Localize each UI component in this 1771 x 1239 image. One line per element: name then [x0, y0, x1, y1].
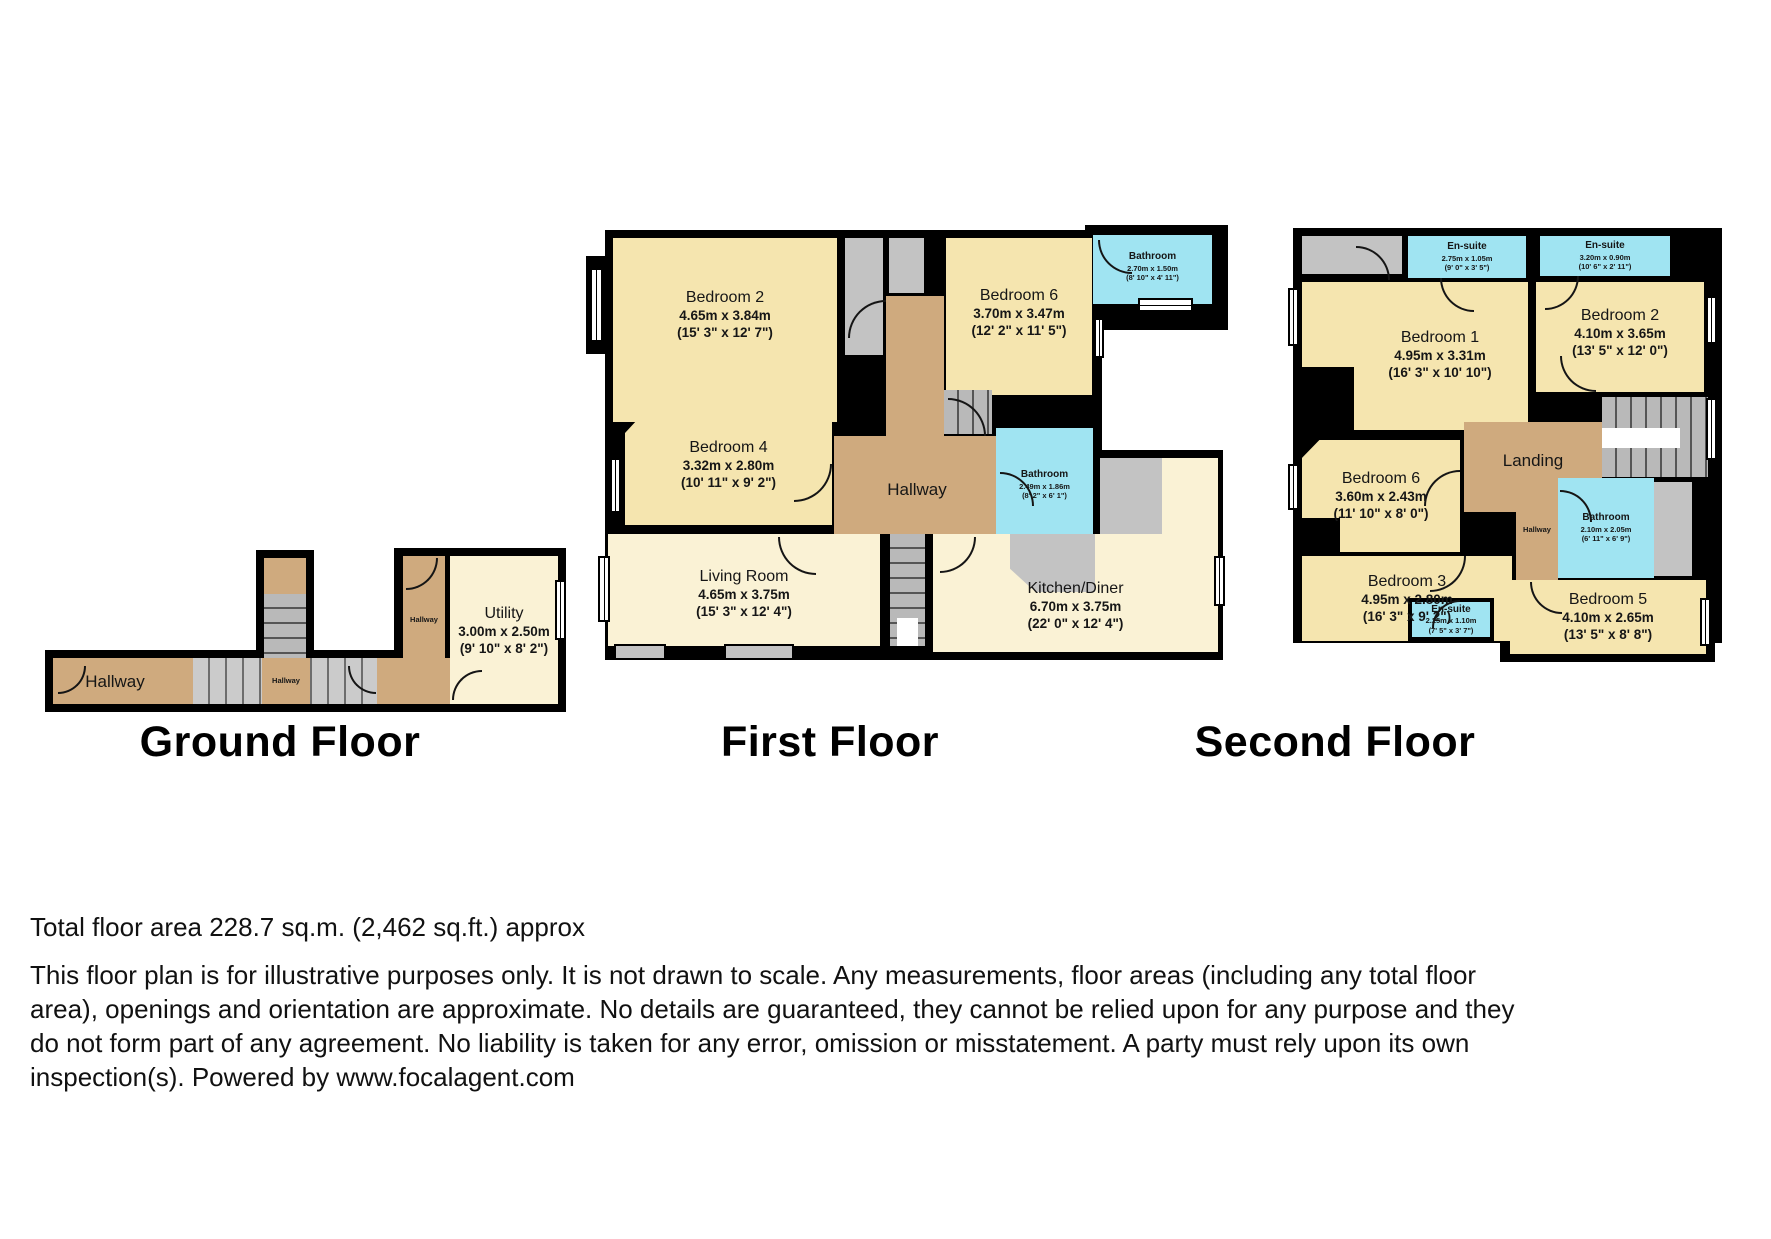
- stair-shaft-top: [264, 558, 306, 594]
- room-label-ensuite-2: En-suite 3.20m x 0.90m (10' 6" x 2' 11"): [1540, 236, 1670, 276]
- room-label-hallway-side: Hallway: [403, 610, 445, 630]
- window: [1706, 296, 1717, 344]
- room-name: Hallway: [1523, 525, 1551, 534]
- room-label-bathroom-mid: Bathroom 2.49m x 1.86m (8' 2" x 6' 1"): [996, 450, 1093, 520]
- room-name: Bedroom 5: [1569, 590, 1647, 610]
- floorplan-canvas: Hallway Hallway Hallway Utility 3.00m x …: [0, 0, 1771, 1239]
- room-dim-ft: (6' 11" x 6' 9"): [1582, 534, 1631, 543]
- room-name: Hallway: [272, 676, 300, 685]
- window: [1288, 288, 1299, 346]
- window: [1706, 398, 1717, 460]
- room-label-hallway: Hallway: [1516, 520, 1558, 540]
- room-name: Landing: [1503, 450, 1564, 471]
- room-dim-m: 4.10m x 3.65m: [1574, 326, 1666, 343]
- room-dim-ft: (13' 5" x 8' 8"): [1564, 627, 1652, 644]
- room-dim-ft: (11' 10" x 8' 0"): [1333, 506, 1428, 523]
- room-label-bedroom-2: Bedroom 2 4.10m x 3.65m (13' 5" x 12' 0"…: [1536, 288, 1704, 378]
- total-floor-area-text: Total floor area 228.7 sq.m. (2,462 sq.f…: [30, 912, 1030, 943]
- room-dim-ft: (9' 0" x 3' 5"): [1445, 263, 1490, 272]
- window: [610, 458, 621, 513]
- hallway-stem: [886, 296, 944, 436]
- room-label-ensuite-1: En-suite 2.75m x 1.05m (9' 0" x 3' 5"): [1408, 236, 1526, 278]
- room-label-bedroom-6: Bedroom 6 3.60m x 2.43m (11' 10" x 8' 0"…: [1302, 452, 1460, 540]
- room-label-hallway-mid: Hallway: [262, 658, 310, 704]
- room-dim-ft: (7' 5" x 3' 7"): [1429, 626, 1474, 635]
- ground-floor-title: Ground Floor: [90, 718, 470, 767]
- room-label-bedroom-1: Bedroom 1 4.95m x 3.31m (16' 3" x 10' 10…: [1355, 300, 1525, 410]
- room-label-landing: Landing: [1464, 438, 1602, 484]
- room-name: Bathroom: [1129, 251, 1176, 264]
- window: [1094, 318, 1104, 358]
- porch-step: [614, 644, 666, 660]
- room-dim-ft: (12' 2" x 11' 5"): [971, 323, 1066, 340]
- room-label-kitchen: Kitchen/Diner 6.70m x 3.75m (22' 0" x 12…: [933, 560, 1218, 652]
- room-name: En-suite: [1447, 241, 1486, 254]
- room-dim-ft: (15' 3" x 12' 4"): [696, 604, 792, 621]
- room-name: Bedroom 6: [1342, 469, 1420, 489]
- window: [590, 268, 603, 342]
- stair-landing-strip: [1602, 428, 1680, 448]
- room-dim-m: 4.65m x 3.84m: [679, 308, 771, 325]
- room-name: Hallway: [85, 671, 145, 692]
- room-dim-m: 4.95m x 3.31m: [1394, 348, 1486, 365]
- room-dim-m: 3.32m x 2.80m: [683, 458, 775, 475]
- room-dim-ft: (8' 10" x 4' 11"): [1126, 273, 1179, 282]
- room-name: Bathroom: [1582, 512, 1629, 525]
- window: [1138, 298, 1193, 312]
- room-dim-ft: (10' 6" x 2' 11"): [1579, 262, 1632, 271]
- room-label-bathroom: Bathroom 2.10m x 2.05m (6' 11" x 6' 9"): [1558, 496, 1654, 560]
- room-label-bedroom-5: Bedroom 5 4.10m x 2.65m (13' 5" x 8' 8"): [1510, 582, 1706, 652]
- room-dim-m: 2.49m x 1.86m: [1019, 482, 1070, 491]
- room-label-living: Living Room 4.65m x 3.75m (15' 3" x 12' …: [608, 548, 880, 640]
- room-dim-m: 3.70m x 3.47m: [973, 306, 1065, 323]
- stair-opening: [897, 618, 918, 646]
- room-label-utility: Utility 3.00m x 2.50m (9' 10" x 8' 2"): [450, 598, 558, 664]
- room-name: Bedroom 2: [1581, 306, 1659, 326]
- room-dim-m: 4.65m x 3.75m: [698, 587, 790, 604]
- room-name: Bedroom 3: [1368, 572, 1446, 592]
- room-label-ensuite-3: En-suite 2.25m x 1.10m (7' 5" x 3' 7"): [1408, 598, 1494, 641]
- room-dim-m: 3.20m x 0.90m: [1580, 253, 1631, 262]
- room-name: Hallway: [887, 479, 947, 500]
- room-label-hallway: Hallway: [834, 460, 1000, 520]
- room-name: Kitchen/Diner: [1027, 579, 1123, 599]
- room-label-hallway: Hallway: [60, 664, 170, 700]
- room-name: En-suite: [1431, 604, 1470, 617]
- room-dim-m: 3.00m x 2.50m: [458, 624, 550, 641]
- first-floor-title: First Floor: [640, 718, 1020, 767]
- disclaimer-text: This floor plan is for illustrative purp…: [30, 958, 1545, 1094]
- room-name: Utility: [484, 604, 523, 624]
- room-dim-m: 3.60m x 2.43m: [1335, 489, 1427, 506]
- room-name: Bathroom: [1021, 469, 1068, 482]
- room-dim-ft: (15' 3" x 12' 7"): [677, 325, 773, 342]
- closet: [889, 238, 924, 293]
- room-label-bedroom-6: Bedroom 6 3.70m x 3.47m (12' 2" x 11' 5"…: [946, 258, 1092, 368]
- room-dim-ft: (10' 11" x 9' 2"): [681, 475, 776, 492]
- stairs: [264, 594, 306, 658]
- room-name: Living Room: [700, 567, 789, 587]
- room-name: Bedroom 4: [689, 438, 767, 458]
- room-name: Bedroom 2: [686, 288, 764, 308]
- room-dim-ft: (22' 0" x 12' 4"): [1028, 616, 1124, 633]
- room-label-bathroom-top: Bathroom 2.70m x 1.50m (8' 10" x 4' 11"): [1093, 235, 1212, 299]
- room-label-bedroom-2: Bedroom 2 4.65m x 3.84m (15' 3" x 12' 7"…: [613, 260, 837, 370]
- room-dim-m: 2.70m x 1.50m: [1127, 264, 1178, 273]
- room-name: En-suite: [1585, 240, 1624, 253]
- porch-step: [724, 644, 794, 660]
- second-floor-title: Second Floor: [1140, 718, 1530, 767]
- room-name: Bedroom 6: [980, 286, 1058, 306]
- closet: [1100, 458, 1162, 534]
- room-dim-ft: (8' 2" x 6' 1"): [1022, 491, 1067, 500]
- room-dim-m: 2.10m x 2.05m: [1581, 525, 1632, 534]
- chimney-block: [1302, 367, 1354, 430]
- room-dim-m: 4.10m x 2.65m: [1562, 610, 1654, 627]
- room-dim-m: 6.70m x 3.75m: [1030, 599, 1122, 616]
- closet: [1654, 482, 1692, 576]
- room-dim-ft: (13' 5" x 12' 0"): [1572, 343, 1668, 360]
- room-dim-m: 2.25m x 1.10m: [1426, 616, 1477, 625]
- room-dim-ft: (16' 3" x 10' 10"): [1388, 365, 1491, 382]
- room-dim-m: 2.75m x 1.05m: [1442, 254, 1493, 263]
- room-dim-ft: (9' 10" x 8' 2"): [460, 641, 548, 658]
- room-name: Hallway: [410, 615, 438, 624]
- room-label-bedroom-4: Bedroom 4 3.32m x 2.80m (10' 11" x 9' 2"…: [625, 410, 832, 520]
- window: [1288, 464, 1299, 510]
- room-name: Bedroom 1: [1401, 328, 1479, 348]
